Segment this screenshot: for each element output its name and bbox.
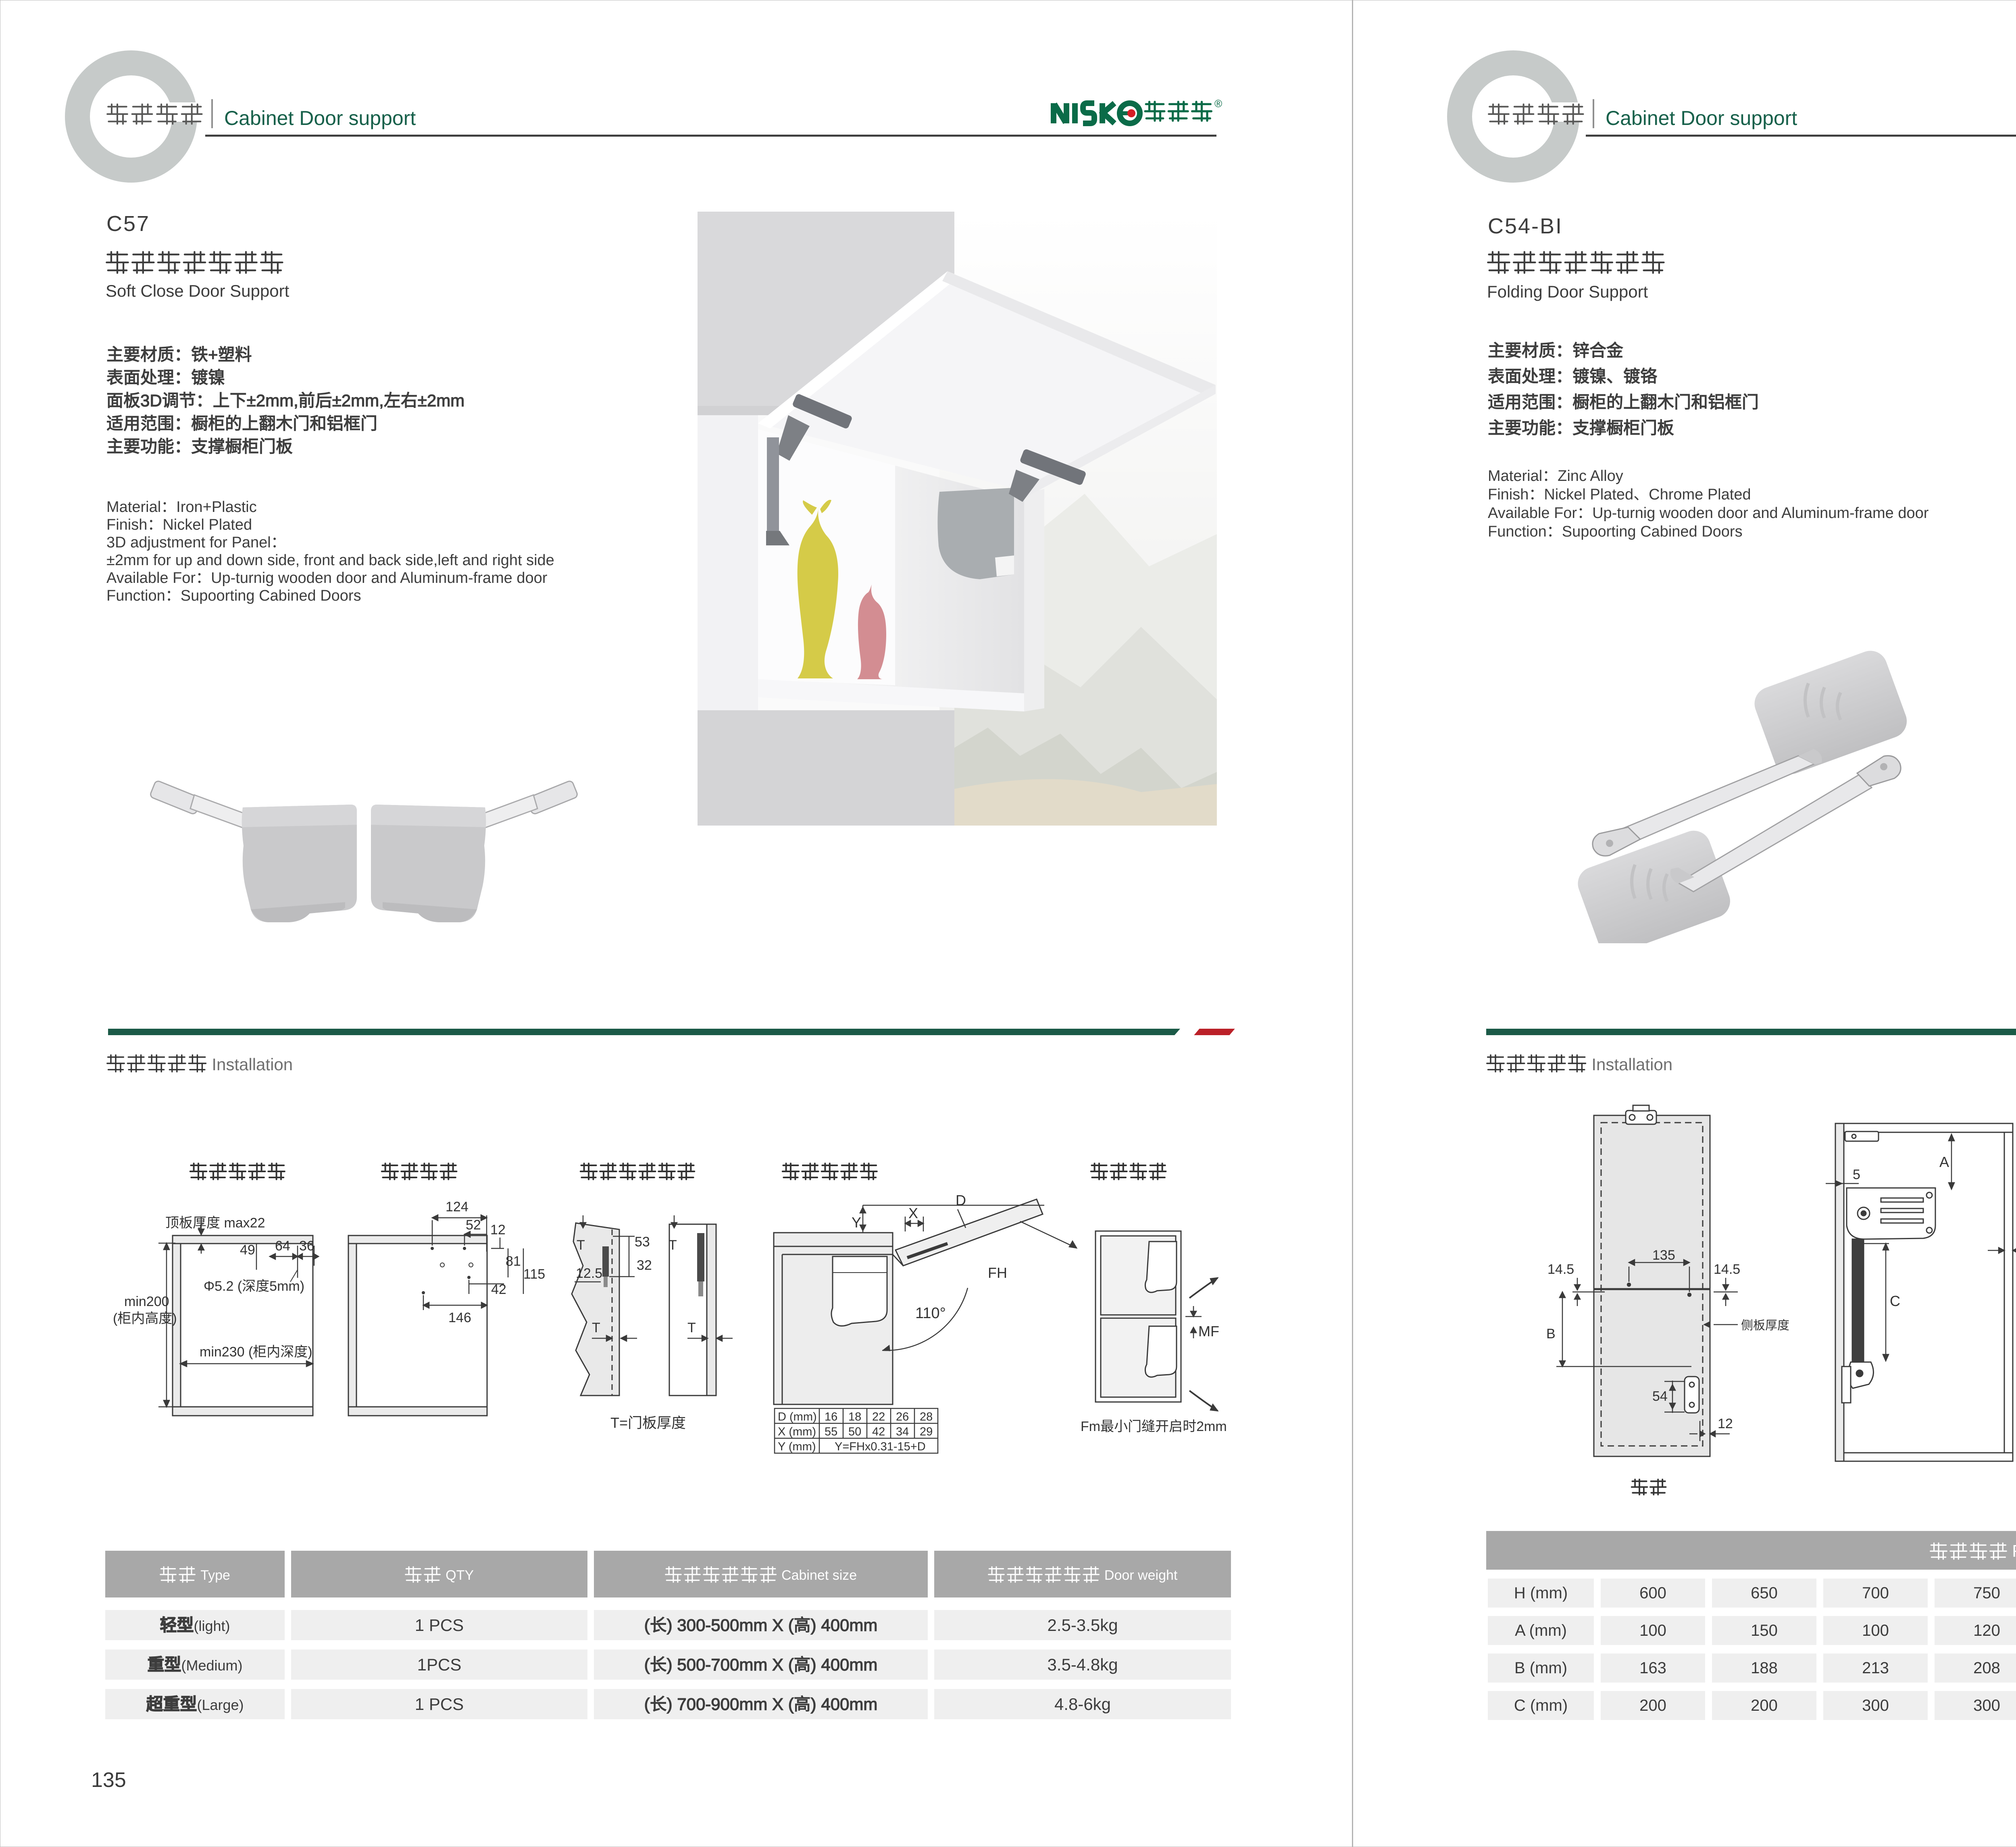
svg-text:54: 54 [1652, 1389, 1668, 1404]
svg-text:FH: FH [988, 1265, 1007, 1281]
svg-text:18: 18 [848, 1410, 861, 1423]
svg-text:Φ5.2 (深度5mm): Φ5.2 (深度5mm) [204, 1279, 304, 1294]
svg-text:115: 115 [523, 1267, 545, 1282]
svg-text:50: 50 [848, 1425, 861, 1438]
svg-text:T: T [577, 1238, 585, 1253]
svg-text:14.5: 14.5 [1714, 1262, 1740, 1277]
svg-text:C: C [1890, 1293, 1900, 1309]
svg-text:侧板厚度: 侧板厚度 [1741, 1319, 1789, 1332]
svg-text:T=门板厚度: T=门板厚度 [610, 1414, 686, 1431]
svg-text:28: 28 [920, 1410, 933, 1423]
svg-text:14.5: 14.5 [1547, 1262, 1574, 1277]
svg-text:26: 26 [896, 1410, 909, 1423]
svg-text:34: 34 [896, 1425, 909, 1438]
svg-text:T: T [669, 1238, 677, 1253]
svg-text:49: 49 [240, 1242, 255, 1258]
svg-text:29: 29 [920, 1425, 933, 1438]
svg-text:顶板厚度 max22: 顶板厚度 max22 [165, 1215, 265, 1231]
svg-text:min200: min200 [124, 1294, 169, 1309]
svg-text:T: T [687, 1320, 696, 1335]
svg-text:min230 (柜内深度): min230 (柜内深度) [200, 1344, 312, 1360]
svg-text:110°: 110° [915, 1305, 946, 1322]
svg-text:52: 52 [466, 1217, 481, 1233]
svg-text:®: ® [1214, 98, 1222, 110]
svg-text:Fm最小门缝开启时2mm: Fm最小门缝开启时2mm [1081, 1419, 1227, 1434]
svg-text:A: A [1939, 1154, 1949, 1170]
svg-text:22: 22 [872, 1410, 885, 1423]
svg-text:64: 64 [275, 1238, 290, 1254]
svg-text:Y=FHx0.31-15+D: Y=FHx0.31-15+D [835, 1440, 926, 1453]
svg-text:124: 124 [446, 1199, 469, 1215]
svg-text:D: D [956, 1192, 966, 1208]
svg-text:D (mm): D (mm) [778, 1410, 817, 1423]
svg-text:53: 53 [635, 1234, 650, 1250]
svg-text:81: 81 [506, 1254, 521, 1269]
svg-text:146: 146 [448, 1310, 471, 1325]
svg-text:32: 32 [637, 1258, 652, 1273]
svg-text:Y: Y [852, 1214, 861, 1231]
svg-text:X (mm): X (mm) [778, 1425, 816, 1438]
svg-text:(柜内高度): (柜内高度) [113, 1311, 177, 1326]
svg-text:MF: MF [1198, 1323, 1219, 1339]
svg-text:12: 12 [490, 1222, 506, 1238]
svg-text:135: 135 [1652, 1248, 1675, 1263]
svg-text:5: 5 [1853, 1167, 1860, 1182]
svg-text:16: 16 [825, 1410, 837, 1423]
svg-text:B: B [1546, 1326, 1556, 1342]
svg-text:X: X [908, 1205, 918, 1221]
svg-text:12: 12 [1718, 1416, 1733, 1431]
svg-text:42: 42 [872, 1425, 885, 1438]
svg-text:42: 42 [491, 1282, 506, 1297]
svg-text:12.5: 12.5 [576, 1266, 602, 1281]
svg-text:Y (mm): Y (mm) [778, 1440, 816, 1453]
svg-text:T: T [592, 1320, 600, 1335]
svg-text:55: 55 [825, 1425, 837, 1438]
svg-text:36: 36 [299, 1238, 314, 1254]
